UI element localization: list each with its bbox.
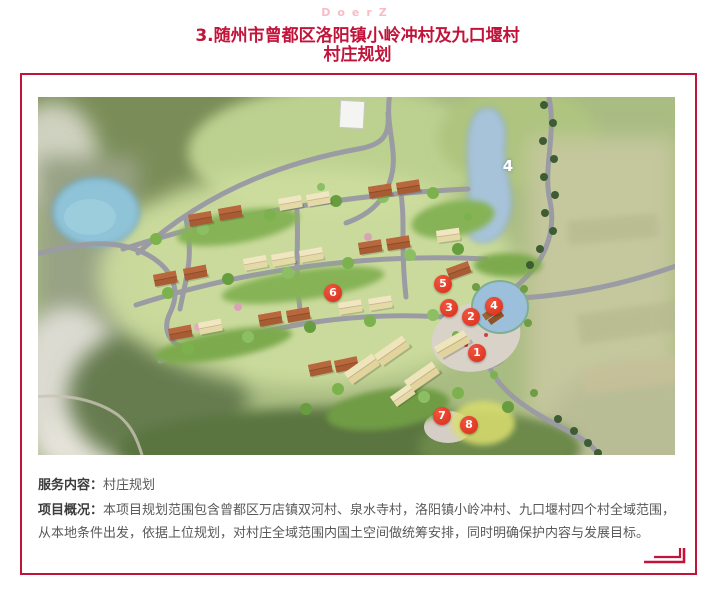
map-marker-2: 2: [462, 308, 480, 326]
overview-line: 项目概况：本项目规划范围包含曾都区万店镇双河村、泉水寺村，洛阳镇小岭冲村、九口堰…: [38, 499, 681, 545]
service-line: 服务内容：村庄规划: [38, 474, 681, 497]
project-info: 服务内容：村庄规划 项目概况：本项目规划范围包含曾都区万店镇双河村、泉水寺村，洛…: [38, 474, 681, 547]
map-marker-5: 5: [434, 275, 452, 293]
overview-value: 本项目规划范围包含曾都区万店镇双河村、泉水寺村，洛阳镇小岭冲村、九口堰村四个村全…: [38, 503, 675, 541]
page-title: 3.随州市曾都区洛阳镇小岭冲村及九口堰村 村庄规划: [0, 27, 715, 65]
map-illustration: [38, 97, 675, 455]
service-label: 服务内容：: [38, 478, 103, 493]
page-title-line1: 3.随州市曾都区洛阳镇小岭冲村及九口堰村: [0, 27, 715, 46]
content-box: 12345678 4 服务内容：村庄规划 项目概况：本项目规划范围包含曾都区万店…: [20, 73, 697, 575]
page-corner-icon[interactable]: [642, 546, 688, 564]
village-plan-map: 12345678 4: [38, 97, 675, 455]
brand-watermark: DoerZ: [0, 6, 715, 19]
overview-label: 项目概况：: [38, 503, 103, 518]
service-value: 村庄规划: [103, 478, 155, 493]
lake-label: 4: [503, 157, 513, 175]
page-title-line2: 村庄规划: [0, 46, 715, 65]
map-marker-1: 1: [468, 344, 486, 362]
map-marker-4: 4: [485, 297, 503, 315]
map-marker-7: 7: [433, 407, 451, 425]
map-marker-3: 3: [440, 299, 458, 317]
map-marker-8: 8: [460, 416, 478, 434]
map-marker-6: 6: [324, 284, 342, 302]
